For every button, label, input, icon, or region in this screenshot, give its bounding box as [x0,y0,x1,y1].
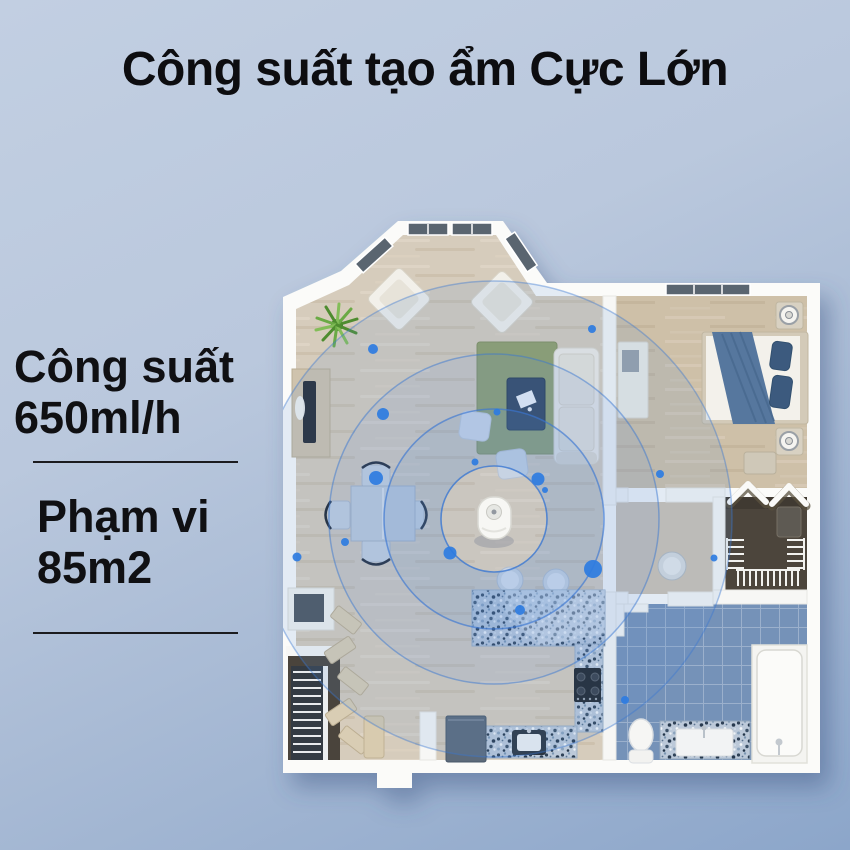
bedroom-window [666,284,750,295]
nightstand [776,428,803,455]
humidifier-device [474,497,514,548]
apartment-floor-plan [0,0,850,850]
bed-bench [744,452,776,474]
toilet [629,719,653,763]
vanity [660,721,750,759]
closet-cabinet [777,507,801,537]
bed [702,332,808,424]
product-banner: Công suất tạo ẩm Cực Lớn Công suất 650ml… [0,0,850,850]
nightstand [776,302,803,329]
